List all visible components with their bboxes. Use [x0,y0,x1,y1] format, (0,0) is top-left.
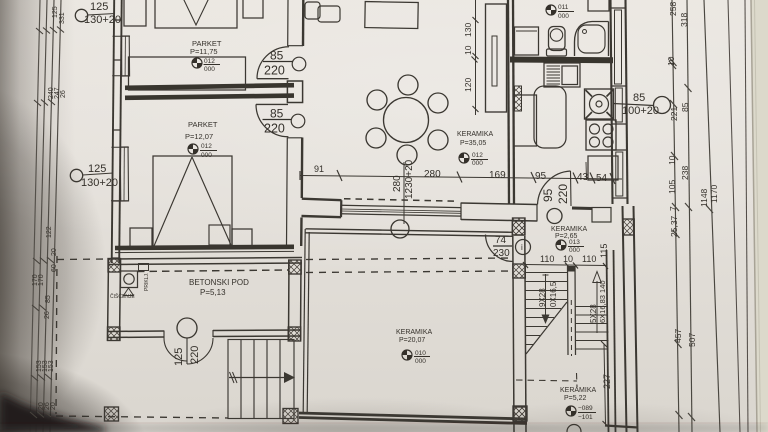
svg-text:110: 110 [582,254,596,264]
svg-text:KERAMIKA: KERAMIKA [457,131,494,138]
svg-text:000: 000 [569,247,580,254]
svg-text:60: 60 [51,264,58,272]
svg-text:000: 000 [558,13,569,20]
svg-text:BETONSKI POD: BETONSKI POD [189,278,249,287]
svg-text:220: 220 [264,122,285,136]
svg-text:000: 000 [204,66,215,73]
svg-text:74: 74 [495,235,507,246]
svg-text:000: 000 [201,152,212,159]
svg-text:220: 220 [556,184,570,204]
svg-text:i: i [521,243,523,252]
svg-text:54: 54 [596,173,608,184]
svg-text:280: 280 [424,169,441,180]
svg-text:130+20: 130+20 [84,14,121,26]
svg-text:85: 85 [633,92,645,104]
svg-text:P=5,22: P=5,22 [564,395,586,402]
svg-text:258: 258 [668,2,678,16]
svg-text:25,37: 25,37 [669,215,679,237]
svg-text:26: 26 [44,311,51,319]
svg-text:105: 105 [667,180,677,194]
svg-text:110: 110 [540,254,554,264]
svg-text:6X16,83 140: 6X16,83 140 [598,280,607,323]
svg-text:169: 169 [489,170,506,181]
svg-text:130: 130 [463,23,473,37]
svg-text:−101: −101 [578,414,593,421]
svg-text:1148: 1148 [699,188,709,207]
svg-text:KERAMIKA: KERAMIKA [560,387,597,394]
svg-text:238: 238 [680,166,690,180]
svg-text:280: 280 [392,175,403,192]
svg-text:10: 10 [666,56,676,66]
svg-text:85: 85 [45,295,52,303]
svg-text:130+20: 130+20 [81,177,118,189]
svg-text:85: 85 [270,49,284,63]
svg-text:1170: 1170 [709,184,719,203]
svg-text:1230+20: 1230+20 [404,159,415,199]
svg-text:10: 10 [667,155,677,165]
svg-text:507: 507 [687,333,697,347]
svg-text:100+20: 100+20 [622,105,659,117]
svg-text:318: 318 [679,13,689,27]
svg-text:P=12,07: P=12,07 [185,132,213,141]
svg-text:230: 230 [493,248,510,259]
svg-text:ČIŠĆENJE: ČIŠĆENJE [110,293,135,300]
svg-text:012: 012 [204,58,215,65]
svg-text:125: 125 [173,348,185,366]
svg-text:KERAMIKA: KERAMIKA [396,329,433,336]
svg-text:95: 95 [535,171,547,182]
svg-text:220: 220 [189,346,201,364]
svg-text:000: 000 [472,160,483,167]
svg-text:153: 153 [48,360,55,372]
svg-text:−089: −089 [578,405,593,412]
svg-text:457: 457 [673,329,683,343]
svg-text:010: 010 [415,350,426,357]
svg-text:26: 26 [60,90,67,98]
svg-text:120: 120 [463,78,473,92]
svg-text:85: 85 [680,102,690,112]
svg-text:012: 012 [201,143,212,150]
svg-text:85: 85 [270,107,284,121]
svg-text:0X16,5: 0X16,5 [549,281,558,307]
svg-text:125: 125 [52,6,59,18]
svg-text:PRIKLJ.: PRIKLJ. [144,273,150,291]
svg-text:9X28: 9X28 [538,288,547,307]
svg-text:5X28: 5X28 [589,304,598,323]
svg-text:10: 10 [563,254,573,264]
svg-text:125: 125 [88,163,106,175]
svg-text:125: 125 [90,1,108,13]
svg-text:220: 220 [264,64,285,78]
svg-text:91: 91 [314,164,324,174]
svg-text:227: 227 [602,374,612,389]
svg-text:P=5,13: P=5,13 [200,288,226,297]
svg-text:012: 012 [472,152,483,159]
svg-text:122: 122 [46,226,53,238]
svg-text:170: 170 [38,274,45,286]
svg-text:013: 013 [569,239,580,246]
svg-text:115: 115 [599,244,609,258]
svg-text:000: 000 [415,358,426,365]
svg-text:43: 43 [577,172,589,183]
svg-text:011: 011 [558,4,569,11]
svg-text:7: 7 [668,206,678,211]
svg-text:20: 20 [51,248,58,256]
svg-text:10: 10 [463,45,473,55]
svg-text:P=20,07: P=20,07 [399,337,425,344]
svg-text:PARKET: PARKET [188,120,218,129]
svg-text:P=11,75: P=11,75 [190,47,218,56]
svg-text:331: 331 [59,12,66,24]
svg-text:KERAMIKA: KERAMIKA [551,226,588,233]
svg-text:P=35,05: P=35,05 [460,140,486,147]
svg-text:95: 95 [541,188,555,202]
svg-text:20: 20 [50,402,57,410]
svg-text:221: 221 [669,107,679,121]
